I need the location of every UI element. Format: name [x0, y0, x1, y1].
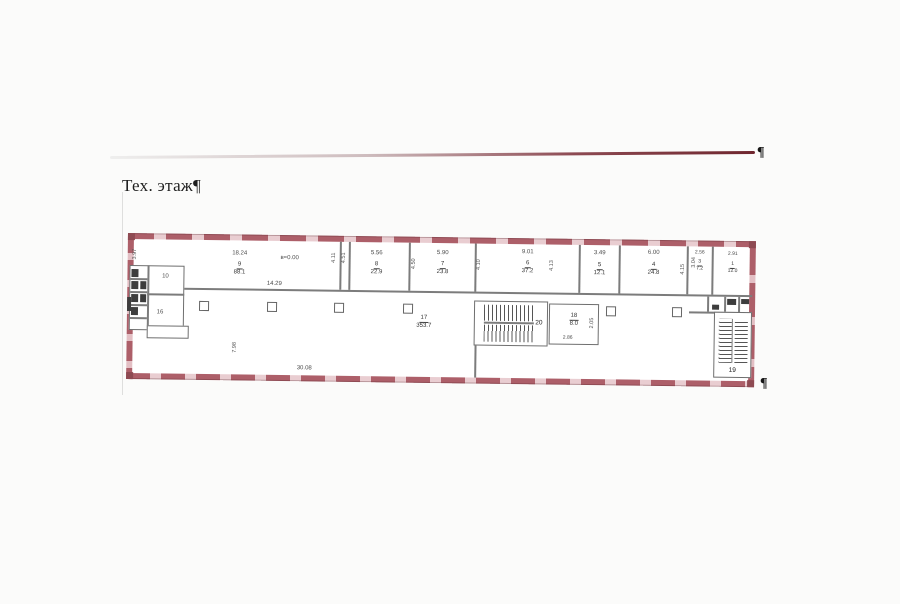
- wall-dim: 4.50: [412, 258, 418, 269]
- stair-treads: [484, 325, 534, 343]
- room-area: 22.9: [371, 269, 383, 276]
- room-width-dim: 2.56: [695, 249, 705, 255]
- room18-width-dim: 2.86: [563, 335, 573, 341]
- sanitary-hatch: [727, 299, 736, 305]
- hall-partition: [474, 346, 476, 378]
- wall-dim: 4.13: [550, 260, 556, 271]
- room-area: 23.8: [437, 269, 449, 276]
- room-area: 8.0: [570, 320, 578, 327]
- page-top-rule: [110, 151, 755, 159]
- room-area: 37.2: [522, 268, 534, 275]
- room-label-6: 6 37.2: [522, 260, 534, 274]
- wall-dim: 3.97: [133, 249, 139, 260]
- room-area: 24.8: [648, 269, 660, 276]
- stair-treads: [718, 319, 732, 363]
- shaft-hatch: [131, 307, 138, 315]
- outer-wall-bottom: [126, 373, 754, 387]
- partition-wall: [348, 242, 351, 290]
- outer-wall-top: [128, 233, 756, 247]
- room-number: 5: [597, 262, 602, 270]
- floor-plan: 10 16 20 18 8.0 2.86 2.05 19 17 353.7 18…: [126, 233, 756, 387]
- core-divider: [130, 278, 147, 280]
- room-label-7: 7 23.8: [437, 261, 449, 275]
- room-width-dim: 9.01: [522, 249, 534, 255]
- wall-dim: 4.10: [477, 259, 483, 270]
- stair-treads: [484, 305, 534, 322]
- elevation-mark: в=0.00: [280, 255, 298, 261]
- column: [606, 306, 616, 316]
- core-room-number: 16: [157, 309, 164, 315]
- room-label-4: 4 24.8: [648, 262, 660, 276]
- wall-corner: [747, 380, 754, 387]
- staircase-number: 19: [729, 367, 736, 374]
- room-width-dim: 3.49: [594, 250, 606, 256]
- room-area: 88.1: [234, 269, 246, 276]
- room18-depth-dim: 2.05: [590, 318, 596, 329]
- room-area: 12.1: [594, 270, 606, 277]
- shaft-hatch: [127, 297, 131, 311]
- stair-treads: [734, 319, 748, 363]
- partition-wall: [618, 245, 621, 293]
- room-number: 18: [570, 313, 579, 321]
- core-extension: [147, 325, 189, 339]
- room-label-9: 9 88.1: [234, 261, 246, 275]
- shaft-hatch: [131, 281, 138, 289]
- core-divider: [130, 304, 147, 306]
- hall-label: 17 353.7: [416, 315, 431, 329]
- room-width-dim: 2.91: [728, 251, 738, 257]
- room-number: 6: [525, 260, 530, 268]
- wall-dim: 4.11: [332, 253, 338, 263]
- partition-wall: [711, 247, 714, 295]
- wall-corner: [128, 233, 135, 240]
- room-area: 12.0: [728, 268, 738, 274]
- sanitary-hatch: [741, 299, 749, 304]
- shaft-hatch: [131, 294, 138, 302]
- wall-dim: 3.04: [692, 257, 698, 268]
- column: [199, 301, 209, 311]
- shaft-hatch: [140, 281, 146, 289]
- shaft-hatch: [131, 269, 138, 277]
- room-label-1: 1 12.0: [728, 262, 738, 274]
- room-number: 7: [440, 261, 445, 269]
- bottom-width-dim: 30.08: [297, 365, 312, 371]
- room-number: 4: [651, 262, 656, 270]
- room-label-18: 18 8.0: [569, 313, 578, 327]
- right-rooms-divider: [738, 297, 740, 312]
- partition-wall: [686, 246, 689, 294]
- room-number: 8: [374, 261, 379, 269]
- corridor-dim: 14.29: [267, 281, 282, 287]
- staircase-number: 20: [535, 319, 542, 326]
- room-width-dim: 6.00: [648, 250, 660, 256]
- room-width-dim: 18.24: [232, 250, 247, 256]
- right-rooms-divider: [707, 297, 709, 312]
- column: [267, 302, 277, 312]
- room-area: 353.7: [416, 322, 431, 329]
- wall-corner: [126, 372, 133, 379]
- wall-corner: [749, 241, 756, 248]
- column: [672, 307, 682, 317]
- room-number: 9: [237, 261, 242, 269]
- partition-wall: [339, 242, 342, 290]
- wall-dim: 4.15: [681, 264, 687, 275]
- partition-wall: [578, 245, 581, 293]
- wall-dim: 4.51: [342, 252, 348, 263]
- sanitary-hatch: [712, 305, 719, 310]
- scan-artifact-line: [122, 192, 123, 395]
- column: [334, 303, 344, 313]
- hall-height-dim: 7.98: [233, 342, 239, 353]
- room-width-dim: 5.56: [371, 250, 383, 256]
- corridor-wall: [172, 288, 752, 298]
- core-room-number: 10: [162, 273, 169, 279]
- room-label-5: 5 12.1: [594, 262, 606, 276]
- core-divider: [130, 291, 147, 293]
- right-rooms-divider: [724, 297, 726, 312]
- room-label-8: 8 22.9: [371, 261, 383, 275]
- paragraph-mark-bottom: ¶: [760, 377, 768, 391]
- room-width-dim: 5.90: [437, 250, 449, 256]
- room-number: 17: [420, 315, 429, 323]
- column: [403, 304, 413, 314]
- paragraph-mark-top: ¶: [757, 146, 765, 160]
- core-divider: [130, 317, 147, 319]
- page-title: Тех. этаж¶: [122, 176, 201, 196]
- shaft-hatch: [140, 294, 146, 302]
